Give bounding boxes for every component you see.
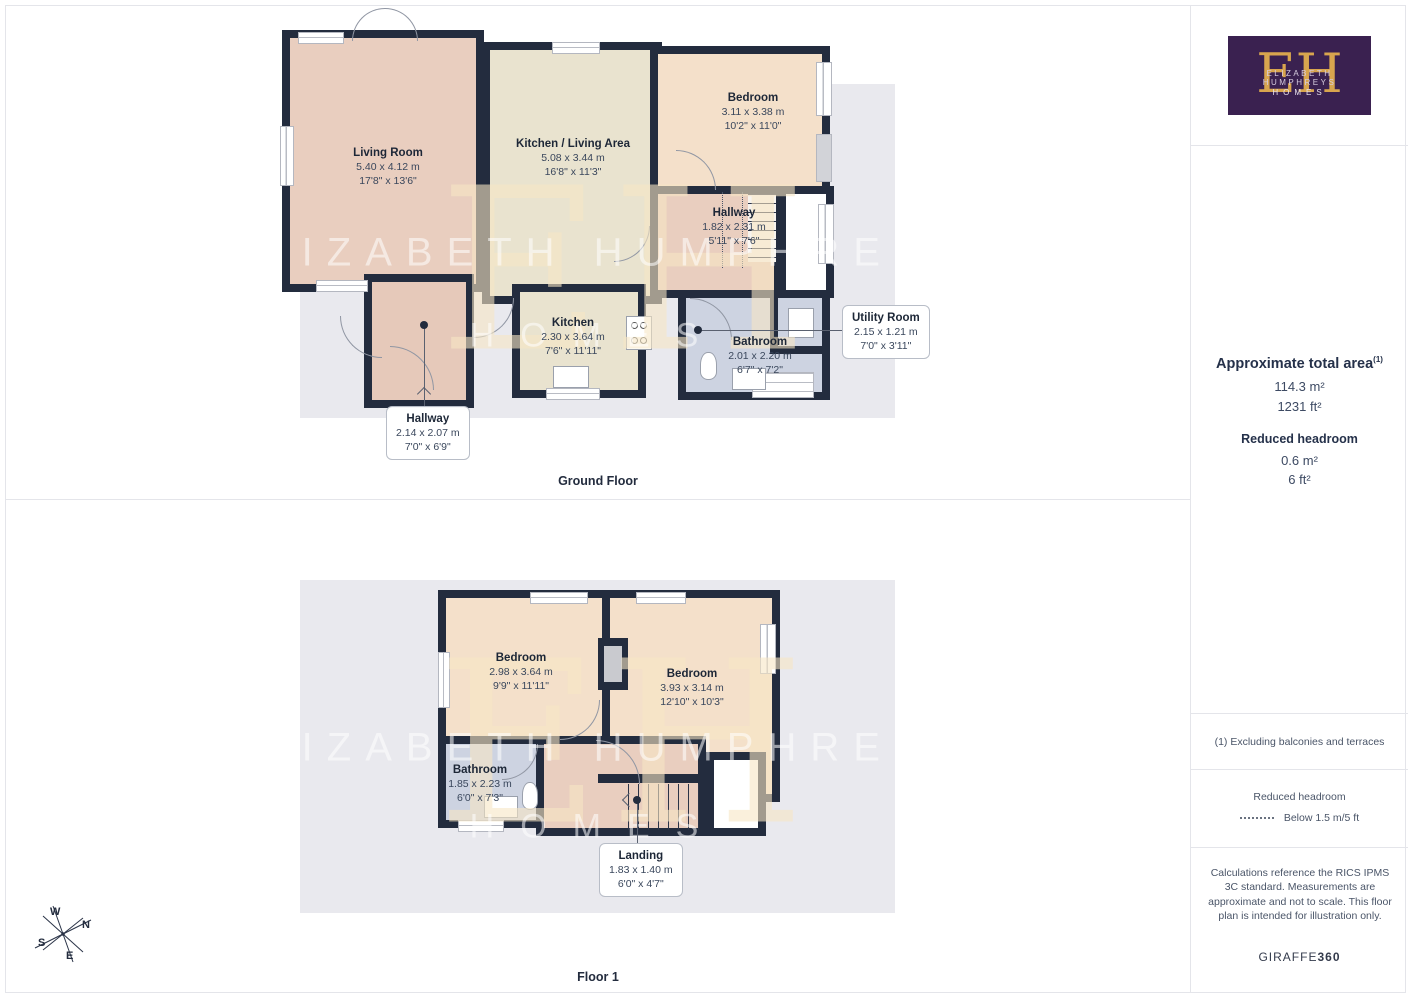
room-size-metric: 1.82 x 2.31 m — [702, 221, 766, 235]
legend-label: Below 1.5 m/5 ft — [1284, 812, 1359, 824]
room-size-metric: 1.83 x 1.40 m — [609, 864, 673, 878]
compass-s: S — [38, 937, 45, 949]
room-size-imperial: 16'8" x 11'3" — [516, 165, 630, 179]
compass-n: N — [82, 919, 90, 931]
sink-icon — [553, 366, 589, 388]
reduced-headroom-metric: 0.6 m² — [1191, 453, 1408, 468]
sidebar-section-divider — [1190, 847, 1408, 848]
floor-1-title: Floor 1 — [577, 970, 619, 984]
sidebar-section-divider — [1190, 713, 1408, 714]
room-name: Bedroom — [660, 667, 724, 682]
reduced-headroom-dotted-swatch — [1240, 817, 1274, 819]
utility-sink-icon — [788, 308, 814, 338]
legend-row: Below 1.5 m/5 ft — [1191, 812, 1408, 824]
room-size-imperial: 12'10" x 10'3" — [660, 695, 724, 709]
room-size-metric: 2.98 x 3.64 m — [489, 666, 553, 680]
ground-floor-title: Ground Floor — [558, 474, 638, 488]
room-size-metric: 3.11 x 3.38 m — [722, 106, 785, 120]
stove-icon — [626, 316, 652, 350]
room-name: Landing — [609, 849, 673, 864]
label-bedroom-f1-right: Bedroom 3.93 x 3.14 m 12'10" x 10'3" — [660, 667, 724, 709]
patio-door — [816, 134, 832, 182]
toilet-icon — [700, 352, 717, 380]
chimney-flue — [604, 646, 622, 682]
room-size-imperial: 6'0" x 7'3" — [448, 791, 512, 805]
window — [530, 592, 588, 604]
window — [280, 126, 294, 186]
room-name: Hallway — [702, 206, 766, 221]
room-size-metric: 2.14 x 2.07 m — [396, 427, 460, 441]
label-bedroom-ground: Bedroom 3.11 x 3.38 m 10'2" x 11'0" — [722, 91, 785, 133]
window — [316, 280, 368, 292]
room-size-metric: 2.30 x 3.64 m — [541, 331, 605, 345]
compass-w: W — [50, 906, 60, 918]
callout-pointer-line — [637, 800, 638, 843]
room-name: Bathroom — [448, 763, 512, 778]
room-name: Bedroom — [722, 91, 785, 106]
total-area-title: Approximate total area(1) — [1191, 355, 1408, 372]
exclusions-note: (1) Excluding balconies and terraces — [1191, 736, 1408, 748]
room-name: Kitchen — [541, 316, 605, 331]
sidebar-divider — [1190, 6, 1191, 993]
callout-landing: Landing 1.83 x 1.40 m 6'0" x 4'7" — [599, 843, 683, 897]
provider-name: GIRAFFE — [1258, 950, 1317, 964]
provider-number: 360 — [1317, 950, 1340, 964]
label-bathroom-f1: Bathroom 1.85 x 2.23 m 6'0" x 7'3" — [448, 763, 512, 805]
reduced-headroom-imperial: 6 ft² — [1191, 472, 1408, 487]
room-size-metric: 1.85 x 2.23 m — [448, 778, 512, 792]
window — [760, 624, 776, 674]
brand-logo: EH ELIZABETH HUMPHREYS HOMES — [1228, 36, 1371, 115]
floor-divider — [6, 499, 1190, 500]
room-name: Kitchen / Living Area — [516, 137, 630, 152]
room-size-metric: 2.01 x 2.20 m — [728, 350, 792, 364]
room-size-imperial: 7'6" x 11'11" — [541, 344, 605, 358]
callout-hallway: Hallway 2.14 x 2.07 m 7'0" x 6'9" — [386, 406, 470, 460]
callout-anchor-dot — [633, 796, 641, 804]
label-kitchen-living: Kitchen / Living Area 5.08 x 3.44 m 16'8… — [516, 137, 630, 179]
window — [816, 62, 832, 116]
total-area-title-text: Approximate total area — [1216, 356, 1373, 372]
disclaimer-text: Calculations reference the RICS IPMS 3C … — [1208, 866, 1392, 924]
legend-title: Reduced headroom — [1191, 791, 1408, 803]
label-kitchen: Kitchen 2.30 x 3.64 m 7'6" x 11'11" — [541, 316, 605, 358]
room-size-metric: 5.40 x 4.12 m — [353, 161, 423, 175]
window — [636, 592, 686, 604]
compass-e: E — [66, 950, 73, 962]
window — [552, 42, 600, 54]
room-size-imperial: 5'11" x 7'6" — [702, 234, 766, 248]
room-name: Utility Room — [852, 311, 920, 326]
callout-pointer-line — [698, 330, 844, 331]
callout-anchor-dot — [420, 321, 428, 329]
total-area-imperial: 1231 ft² — [1191, 399, 1408, 414]
total-area-footnote-ref: (1) — [1373, 355, 1383, 364]
window — [298, 32, 344, 44]
label-bathroom-ground: Bathroom 2.01 x 2.20 m 6'7" x 7'2" — [728, 335, 792, 377]
stairs-floor1 — [628, 784, 700, 830]
room-name: Bedroom — [489, 651, 553, 666]
logo-homes: HOMES — [1228, 88, 1371, 97]
room-size-imperial: 10'2" x 11'0" — [722, 119, 785, 133]
room-size-metric: 2.15 x 1.21 m — [852, 326, 920, 340]
room-size-imperial: 17'8" x 13'6" — [353, 174, 423, 188]
toilet-icon — [522, 782, 538, 810]
room-size-metric: 5.08 x 3.44 m — [516, 152, 630, 166]
sidebar-section-divider — [1190, 145, 1408, 146]
callout-utility-room: Utility Room 2.15 x 1.21 m 7'0" x 3'11" — [842, 305, 930, 359]
room-size-imperial: 6'0" x 4'7" — [609, 878, 673, 892]
label-hallway-stairs: Hallway 1.82 x 2.31 m 5'11" x 7'6" — [702, 206, 766, 248]
stairwell-void-f1 — [706, 752, 766, 836]
callout-anchor-dot — [694, 326, 702, 334]
reduced-headroom-title: Reduced headroom — [1191, 432, 1408, 446]
window — [546, 388, 600, 400]
logo-name: ELIZABETH HUMPHREYS — [1228, 69, 1371, 87]
provider-logo: GIRAFFE360 — [1191, 950, 1408, 964]
room-size-imperial: 7'0" x 6'9" — [396, 441, 460, 455]
total-area-metric: 114.3 m² — [1191, 379, 1408, 394]
room-size-imperial: 6'7" x 7'2" — [728, 363, 792, 377]
room-name: Living Room — [353, 146, 423, 161]
room-name: Bathroom — [728, 335, 792, 350]
floor-plan-page: EH ELIZABETH HUMPHREYS HOMES Living Room… — [0, 0, 1413, 1000]
sidebar-section-divider — [1190, 769, 1408, 770]
window — [438, 652, 450, 708]
room-size-metric: 3.93 x 3.14 m — [660, 682, 724, 696]
window — [458, 820, 504, 832]
label-living-room: Living Room 5.40 x 4.12 m 17'8" x 13'6" — [353, 146, 423, 188]
room-name: Hallway — [396, 412, 460, 427]
compass-star — [26, 896, 102, 972]
label-bedroom-f1-left: Bedroom 2.98 x 3.64 m 9'9" x 11'11" — [489, 651, 553, 693]
room-size-imperial: 9'9" x 11'11" — [489, 679, 553, 693]
window — [818, 204, 834, 264]
room-size-imperial: 7'0" x 3'11" — [852, 340, 920, 354]
